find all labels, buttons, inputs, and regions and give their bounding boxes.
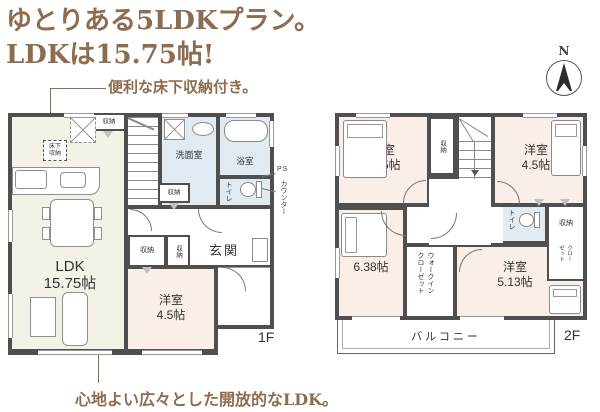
- toilet-tank-icon: [256, 181, 262, 198]
- window: [142, 350, 202, 355]
- closet-door-mark: [169, 203, 179, 210]
- label-bedroom-1f: 洋室 4.5帖: [130, 293, 212, 323]
- window: [38, 350, 112, 355]
- stairs-2f-arrow: [471, 170, 479, 176]
- pillow: [345, 217, 357, 253]
- label-bedroom-513-name: 洋室: [478, 260, 552, 275]
- closet-1f-hall-b-label: 収納: [174, 245, 181, 258]
- label-ps: PS: [277, 166, 288, 173]
- pillow: [347, 124, 383, 138]
- label-counter: カウンター: [278, 180, 288, 215]
- closet-1f-hall-a: 収納: [128, 235, 166, 267]
- washing-machine-icon: [164, 119, 185, 140]
- pillow: [555, 124, 577, 137]
- label-bathroom-1f: 浴室: [220, 155, 270, 167]
- label-bedroom-638-size: 6.38帖: [339, 260, 403, 275]
- floor2-label: 2F: [564, 327, 580, 343]
- toilet-bowl-icon: [519, 213, 534, 227]
- label-toilet-2f: トイレ: [506, 209, 516, 230]
- toilet-tank-icon: [534, 212, 540, 228]
- label-ldk-size: 15.75帖: [30, 275, 110, 292]
- bed: [343, 120, 387, 178]
- closet-1f-top: 収納: [92, 113, 126, 131]
- closet-1f-understairs-label: 収納: [168, 189, 181, 196]
- annotation-underfloor-storage: 便利な床下収納付き。: [108, 76, 257, 97]
- underfloor-storage-label: 床下 収納: [49, 144, 61, 157]
- window: [8, 210, 13, 242]
- window: [582, 146, 587, 176]
- label-entrance: 玄関: [196, 240, 252, 259]
- label-ldk-name: LDK: [30, 258, 110, 275]
- closet-1f-understairs: 収納: [158, 183, 190, 203]
- label-washroom-1f: 洗面室: [162, 148, 216, 161]
- chair: [42, 227, 50, 240]
- window: [335, 146, 340, 176]
- low-table: [30, 297, 56, 337]
- label-bedroom-513: 洋室 5.13帖: [478, 260, 552, 290]
- sofa: [62, 292, 88, 346]
- annotation-ldk: 心地よい広々とした開放的なLDK。: [75, 386, 338, 410]
- closet-1f-hall-a-label: 収納: [140, 247, 154, 255]
- washbasin-icon: [192, 122, 214, 136]
- window: [162, 113, 188, 118]
- dining-table: [50, 199, 94, 247]
- kitchen-sink-icon: [60, 172, 86, 188]
- closet-2f-right-label: 収納: [559, 220, 573, 228]
- window: [226, 113, 256, 118]
- window: [64, 113, 94, 118]
- closet-1f-hall-b: 収納: [166, 235, 190, 267]
- annotation-top-line-h: [50, 88, 106, 89]
- chair: [94, 227, 102, 240]
- closet-2f-stairs: 収納: [429, 117, 455, 175]
- closet-2f-stairs-label: 収納: [438, 140, 445, 153]
- floorplan-page: ゆとりある5LDKプラン。 LDKは15.75帖! 便利な床下収納付き。 心地よ…: [0, 0, 600, 412]
- label-balcony: バルコニー: [338, 328, 554, 344]
- label-toilet-1f: トイレ: [223, 181, 233, 202]
- window: [356, 113, 390, 118]
- ceiling-cabinet-icon: [70, 117, 96, 143]
- label-closet-small: クロー ゼット: [557, 245, 573, 262]
- window: [8, 294, 13, 338]
- closet-door-mark: [142, 267, 152, 274]
- label-bedroom-1f-size: 4.5帖: [130, 308, 212, 323]
- label-ldk: LDK 15.75帖: [30, 258, 110, 292]
- window: [269, 121, 274, 147]
- closet-1f-top-label: 収納: [103, 118, 116, 125]
- closet-door-mark: [560, 199, 570, 206]
- bed: [551, 120, 581, 176]
- bathtub-icon: [224, 120, 268, 142]
- compass-north-label: N: [554, 44, 574, 58]
- label-bedroom-1f-name: 洋室: [130, 293, 212, 308]
- underfloor-storage-box: 床下 収納: [43, 140, 67, 161]
- window: [335, 248, 340, 278]
- shoe-cabinet: [252, 238, 268, 262]
- chair: [94, 207, 102, 220]
- window: [523, 113, 557, 118]
- closet-door-mark: [534, 199, 544, 206]
- label-walkin-closet: ウォークイン クローゼット: [415, 252, 435, 294]
- bed: [549, 285, 581, 314]
- toilet-bowl-icon: [240, 182, 256, 197]
- pillow: [553, 289, 577, 297]
- page-title-line2: LDKは15.75帖!: [6, 38, 214, 72]
- floor1-label: 1F: [258, 329, 274, 345]
- closet-door-mark: [103, 131, 113, 138]
- stove-icon: [15, 170, 47, 189]
- bed: [341, 213, 387, 257]
- chair: [42, 207, 50, 220]
- page-title-line1: ゆとりある5LDKプラン。: [6, 4, 320, 38]
- balcony: バルコニー: [337, 320, 555, 354]
- compass-needle-notch: [558, 83, 570, 91]
- closet-2f-right: 収納: [549, 207, 583, 241]
- label-bedroom-513-size: 5.13帖: [478, 275, 552, 290]
